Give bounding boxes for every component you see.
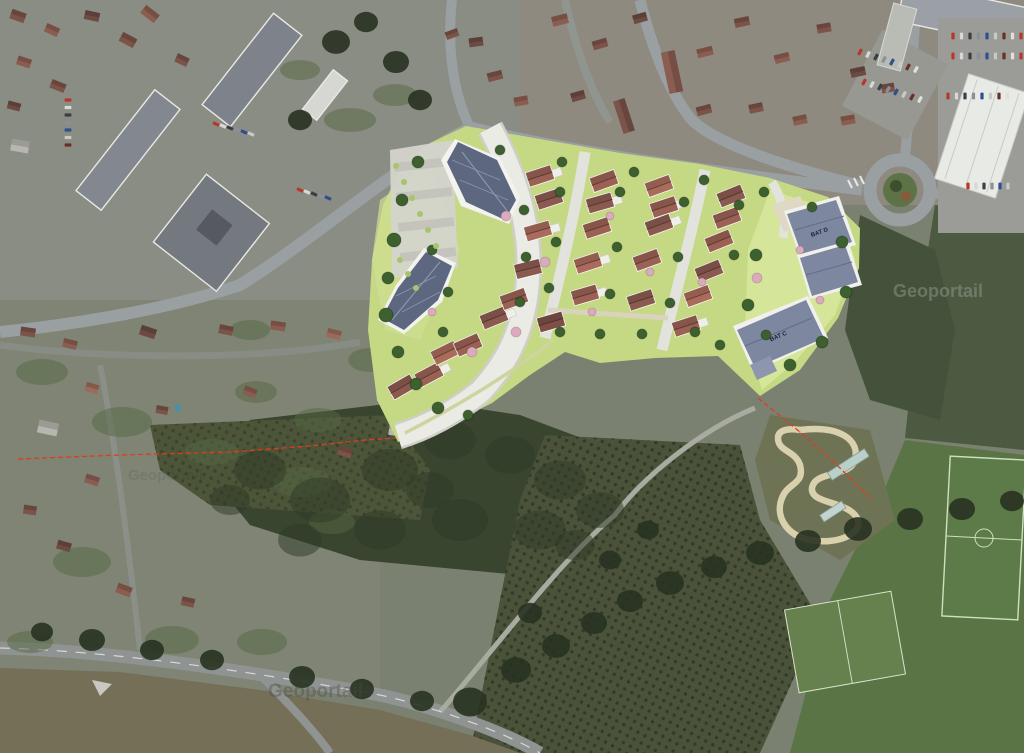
tree-icon bbox=[715, 340, 725, 350]
tree-shadow-blob bbox=[383, 51, 409, 73]
car-body bbox=[989, 93, 992, 100]
car-body bbox=[974, 183, 977, 190]
tree-icon bbox=[387, 233, 401, 247]
shrub-icon bbox=[425, 227, 431, 233]
tree-icon bbox=[759, 187, 769, 197]
parked-car bbox=[951, 33, 954, 40]
tree-icon bbox=[816, 336, 828, 348]
parked-car bbox=[968, 33, 971, 40]
tree-icon bbox=[665, 298, 675, 308]
car-body bbox=[65, 113, 72, 116]
tree-shadow-blob bbox=[617, 590, 643, 612]
car-body bbox=[977, 33, 980, 40]
car-body bbox=[1002, 33, 1005, 40]
garden-blob bbox=[324, 108, 376, 132]
car-body bbox=[960, 33, 963, 40]
parked-car bbox=[1006, 183, 1009, 190]
shrub-icon bbox=[393, 163, 399, 169]
tree-shadow-blob bbox=[200, 650, 224, 670]
tree-shadow-blob bbox=[31, 623, 53, 642]
car-body bbox=[946, 93, 949, 100]
parked-car bbox=[982, 183, 985, 190]
shrub-icon bbox=[401, 179, 407, 185]
tree-shadow-blob bbox=[949, 498, 975, 520]
garden-blob bbox=[280, 60, 320, 80]
parked-car bbox=[985, 53, 988, 60]
car-body bbox=[65, 106, 72, 109]
tree-icon bbox=[521, 252, 531, 262]
parked-car bbox=[951, 53, 954, 60]
parked-car bbox=[960, 53, 963, 60]
car-body bbox=[955, 93, 958, 100]
parked-car bbox=[65, 143, 72, 146]
tree-icon bbox=[396, 194, 408, 206]
car-body bbox=[65, 121, 72, 124]
tree-shadow-blob bbox=[701, 556, 727, 578]
shrub-icon bbox=[405, 271, 411, 277]
parked-car bbox=[974, 183, 977, 190]
forest-canopy-blob bbox=[354, 511, 406, 550]
parked-car bbox=[946, 93, 949, 100]
flowering-tree-icon bbox=[428, 308, 436, 316]
tree-icon bbox=[840, 286, 852, 298]
car-body bbox=[65, 98, 72, 101]
tree-shadow-blob bbox=[637, 521, 659, 540]
parked-car bbox=[1019, 33, 1022, 40]
car-body bbox=[951, 53, 954, 60]
flowering-tree-icon bbox=[467, 347, 477, 357]
flowering-tree-icon bbox=[816, 296, 824, 304]
tree-icon bbox=[412, 156, 424, 168]
flowering-tree-icon bbox=[796, 246, 804, 254]
parked-car bbox=[65, 136, 72, 139]
car-body bbox=[960, 53, 963, 60]
tree-icon bbox=[615, 187, 625, 197]
parked-car bbox=[960, 33, 963, 40]
parked-car bbox=[963, 93, 966, 100]
garden-blob bbox=[16, 359, 68, 385]
parked-car bbox=[1019, 53, 1022, 60]
parked-car bbox=[1002, 33, 1005, 40]
tree-shadow-blob bbox=[518, 603, 542, 623]
tree-icon bbox=[382, 272, 394, 284]
tree-icon bbox=[438, 327, 448, 337]
car-body bbox=[982, 183, 985, 190]
tree-icon bbox=[679, 197, 689, 207]
flowering-tree-icon bbox=[588, 308, 596, 316]
tree-shadow-blob bbox=[79, 629, 105, 651]
parked-car bbox=[966, 183, 969, 190]
flowering-tree-icon bbox=[511, 327, 521, 337]
car-body bbox=[1011, 53, 1014, 60]
parked-car bbox=[65, 98, 72, 101]
tree-icon bbox=[595, 329, 605, 339]
tree-icon bbox=[432, 402, 444, 414]
forest-canopy-blob bbox=[210, 485, 250, 515]
tree-shadow-blob bbox=[795, 530, 821, 552]
tree-icon bbox=[807, 202, 817, 212]
parked-car bbox=[998, 183, 1001, 190]
car-body bbox=[968, 33, 971, 40]
tree-shadow-blob bbox=[844, 517, 872, 541]
parked-car bbox=[972, 93, 975, 100]
forest-canopy-blob bbox=[234, 451, 286, 490]
flowering-tree-icon bbox=[606, 212, 614, 220]
tree-icon bbox=[690, 327, 700, 337]
tree-shadow-blob bbox=[1000, 491, 1024, 511]
forest-canopy-blob bbox=[485, 436, 535, 474]
flowering-tree-icon bbox=[698, 278, 706, 286]
car-body bbox=[1006, 183, 1009, 190]
car-body bbox=[977, 53, 980, 60]
tree-icon bbox=[612, 242, 622, 252]
tree-icon bbox=[761, 330, 771, 340]
garden-blob bbox=[92, 407, 152, 437]
tree-shadow-blob bbox=[501, 657, 531, 683]
parked-car bbox=[980, 93, 983, 100]
tree-icon bbox=[555, 187, 565, 197]
tree-icon bbox=[379, 308, 393, 322]
tree-shadow-blob bbox=[453, 688, 487, 717]
garden-blob bbox=[237, 629, 287, 655]
car-body bbox=[998, 183, 1001, 190]
car-body bbox=[997, 93, 1000, 100]
tree-icon bbox=[742, 299, 754, 311]
parked-car bbox=[994, 53, 997, 60]
tree-icon bbox=[734, 200, 744, 210]
forest-canopy-blob bbox=[278, 524, 322, 557]
car-body bbox=[972, 93, 975, 100]
tree-shadow-blob bbox=[656, 571, 684, 595]
parked-car bbox=[1002, 53, 1005, 60]
car-body bbox=[65, 143, 72, 146]
parked-car bbox=[997, 93, 1000, 100]
shrub-icon bbox=[397, 257, 403, 263]
car-body bbox=[1011, 33, 1014, 40]
geoportail-watermark: Geoportail bbox=[893, 281, 983, 301]
geoportail-watermark: Geoportail bbox=[128, 467, 203, 484]
parked-car bbox=[994, 33, 997, 40]
flowering-tree-icon bbox=[540, 257, 550, 267]
geoportail-watermark: Geoportail bbox=[268, 681, 363, 702]
tree-shadow-blob bbox=[897, 508, 923, 530]
car-body bbox=[1019, 53, 1022, 60]
parked-car bbox=[65, 106, 72, 109]
car-body bbox=[1019, 33, 1022, 40]
flowering-tree-icon bbox=[752, 273, 762, 283]
tree-shadow-blob bbox=[322, 30, 350, 54]
tree-shadow-blob bbox=[408, 90, 432, 110]
car-body bbox=[994, 33, 997, 40]
garden-blob bbox=[294, 408, 342, 432]
tree-icon bbox=[443, 287, 453, 297]
car-body bbox=[966, 183, 969, 190]
garden-blob bbox=[53, 547, 111, 577]
car-body bbox=[985, 33, 988, 40]
tree-shadow-blob bbox=[354, 12, 378, 32]
shrub-icon bbox=[417, 211, 423, 217]
car-body bbox=[985, 53, 988, 60]
shrub-icon bbox=[433, 243, 439, 249]
parked-car bbox=[977, 33, 980, 40]
tree-icon bbox=[729, 250, 739, 260]
car-body bbox=[65, 128, 72, 131]
flowering-tree-icon bbox=[646, 268, 654, 276]
tree-icon bbox=[784, 359, 796, 371]
tree-icon bbox=[557, 157, 567, 167]
roundabout-tree bbox=[890, 180, 902, 192]
tree-icon bbox=[463, 410, 473, 420]
car-body bbox=[1002, 53, 1005, 60]
car-body bbox=[968, 53, 971, 60]
tree-shadow-blob bbox=[140, 640, 164, 660]
parked-car bbox=[990, 183, 993, 190]
aerial-map-canvas: BAT D BAT C Geoportail Geoportail Geopor… bbox=[0, 0, 1024, 753]
parked-car bbox=[968, 53, 971, 60]
tree-icon bbox=[699, 175, 709, 185]
tree-icon bbox=[392, 346, 404, 358]
shrub-icon bbox=[409, 195, 415, 201]
parked-car bbox=[977, 53, 980, 60]
parked-car bbox=[985, 33, 988, 40]
tree-icon bbox=[544, 283, 554, 293]
parked-car bbox=[65, 128, 72, 131]
parked-car bbox=[1011, 53, 1014, 60]
parked-car bbox=[65, 113, 72, 116]
tree-shadow-blob bbox=[581, 612, 607, 634]
car-body bbox=[1006, 93, 1009, 100]
tree-icon bbox=[551, 237, 561, 247]
tree-icon bbox=[515, 297, 525, 307]
tree-shadow-blob bbox=[599, 551, 621, 570]
forest-canopy-blob bbox=[290, 478, 350, 523]
parked-car bbox=[955, 93, 958, 100]
forest-canopy-blob bbox=[534, 461, 586, 500]
roundabout-shrub bbox=[901, 191, 911, 201]
tree-icon bbox=[673, 252, 683, 262]
tree-icon bbox=[629, 167, 639, 177]
garden-blob bbox=[230, 320, 270, 340]
tree-shadow-blob bbox=[542, 634, 570, 658]
tree-icon bbox=[519, 205, 529, 215]
tree-shadow-blob bbox=[288, 110, 312, 130]
photo-house bbox=[23, 505, 37, 516]
swimming-pool bbox=[175, 405, 182, 412]
tree-icon bbox=[605, 289, 615, 299]
tree-icon bbox=[637, 329, 647, 339]
tree-icon bbox=[555, 327, 565, 337]
tree-shadow-blob bbox=[746, 541, 774, 565]
car-body bbox=[980, 93, 983, 100]
car-body bbox=[65, 136, 72, 139]
forest-canopy-blob bbox=[576, 492, 624, 528]
parked-car bbox=[65, 121, 72, 124]
parked-car bbox=[989, 93, 992, 100]
shrub-icon bbox=[413, 285, 419, 291]
car-body bbox=[963, 93, 966, 100]
aerial-map: BAT D BAT C Geoportail Geoportail Geopor… bbox=[0, 0, 1024, 753]
tree-icon bbox=[750, 249, 762, 261]
tree-icon bbox=[410, 378, 422, 390]
parked-car bbox=[1006, 93, 1009, 100]
parked-car bbox=[1011, 33, 1014, 40]
tree-icon bbox=[836, 236, 848, 248]
tree-shadow-blob bbox=[410, 691, 434, 711]
forest-canopy-blob bbox=[555, 530, 595, 560]
tree-icon bbox=[495, 145, 505, 155]
car-body bbox=[994, 53, 997, 60]
car-body bbox=[951, 33, 954, 40]
forest-canopy-blob bbox=[406, 472, 454, 508]
flowering-tree-icon bbox=[501, 211, 511, 221]
car-body bbox=[990, 183, 993, 190]
